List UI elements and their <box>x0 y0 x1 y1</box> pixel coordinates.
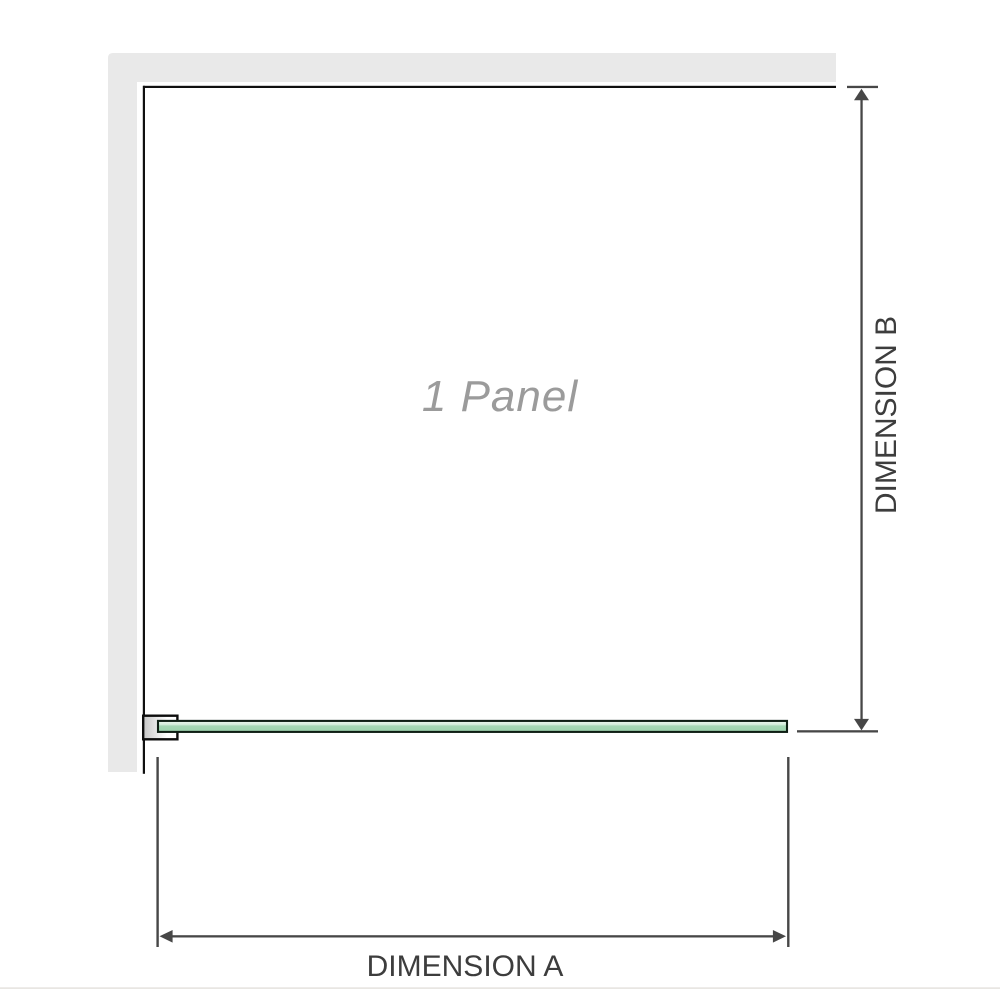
svg-text:DIMENSION A: DIMENSION A <box>367 950 564 983</box>
svg-text:1 Panel: 1 Panel <box>422 372 578 421</box>
svg-text:DIMENSION B: DIMENSION B <box>870 316 903 514</box>
